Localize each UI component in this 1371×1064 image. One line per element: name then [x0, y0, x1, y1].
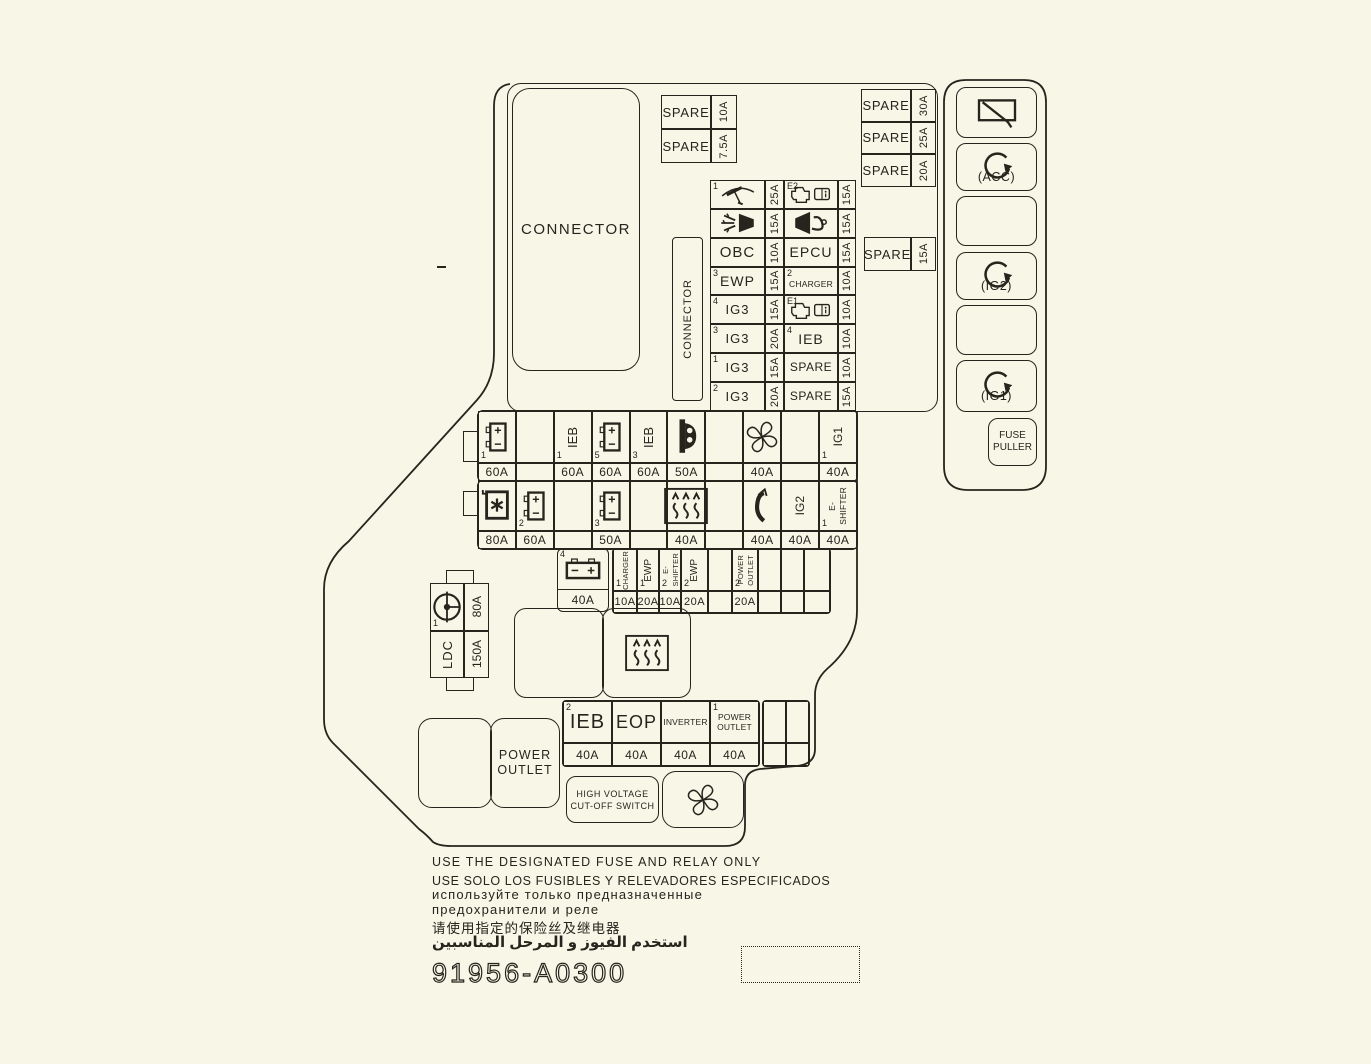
fuse-front-wiper: 1 [710, 180, 765, 209]
fuse-slot-empty [758, 549, 781, 591]
fuse-slot-empty [708, 549, 732, 591]
fuse-amp: 40A [743, 463, 781, 481]
star-box-icon [480, 488, 514, 524]
fuse-amp: 10A [711, 95, 737, 129]
fuse-power-outlet-1: 1POWEROUTLET [710, 701, 759, 743]
fuse-amp: 25A [911, 122, 936, 155]
fuse-slot-empty [705, 481, 743, 531]
fuse-charger: 2CHARGER [784, 267, 838, 296]
fuse-amp: 80A [464, 583, 489, 631]
relay-acc: (ACC) [956, 143, 1037, 191]
warning-line-es: USE SOLO LOS FUSIBLES Y RELEVADORES ESPE… [432, 874, 830, 888]
battery-icon [523, 489, 547, 523]
fuse-amp: 10A [838, 324, 856, 353]
fuse-battery-2: 2 [516, 481, 554, 531]
fuse-spare: SPARE [864, 237, 911, 271]
fuse-amp: 20A [732, 591, 758, 613]
fuse-spare: SPARE [661, 129, 711, 163]
fuse-spare: SPARE [861, 89, 911, 122]
fuse-spare: SPARE [784, 353, 838, 382]
fuse-ig1: 1IG1 [819, 411, 857, 463]
outlet-slot-empty [418, 718, 492, 808]
ldc-block: 1 80A LDC 150A [430, 583, 489, 678]
fuse-amp: 40A [819, 531, 857, 549]
relay-defroster [602, 608, 691, 698]
fuse-amp: 15A [765, 353, 784, 382]
fuse-ig3: 3IG3 [710, 324, 765, 353]
power-outlet-box: POWER OUTLET [490, 718, 560, 808]
fuse-battery-4: 4 40A [557, 548, 609, 612]
fuse-cooling-fan [743, 411, 781, 463]
fuse-row-4: 2IEB EOP INVERTER 1POWEROUTLET 40A 40A 4… [562, 700, 760, 767]
fuse-amp [781, 591, 804, 613]
fuse-blower [478, 481, 516, 531]
fuse-amp: 25A [765, 180, 784, 209]
rear-wiper-icon [971, 95, 1023, 131]
fuse-amp: 80A [478, 531, 516, 549]
connector-vertical-label: CONNECTOR [682, 279, 694, 359]
fuse-slot-empty [516, 411, 554, 463]
fuse-amp: 50A [667, 463, 705, 481]
fuse-headlamp-washer [710, 209, 765, 238]
charge-plug-icon [673, 417, 699, 457]
spare-group-top-right: SPARE 30A SPARE 25A SPARE 20A [861, 89, 936, 187]
fuse-amp: 40A [667, 531, 705, 549]
fuse-amp: 7.5A [711, 129, 737, 163]
fuse-row-3: 1CHARGER 1EWP 2E-SHIFTER 2EWP 2POWEROUTL… [612, 548, 831, 614]
fuse-row-1: 1 1IEB 5 3IEB 1IG1 60A 60A 60A 60A 50A 4… [477, 410, 858, 482]
fuse-amp: 10A [838, 267, 856, 296]
relay-slot-empty [956, 196, 1037, 246]
fuse-amp: 40A [819, 463, 857, 481]
battery-icon [485, 420, 509, 454]
fuse-charger: 1CHARGER [613, 549, 637, 591]
spare-single: SPARE 15A [864, 237, 936, 271]
relay-label: (IG1) [981, 389, 1012, 403]
ldc-tab-top [446, 570, 474, 584]
fuse-amp: 40A [563, 743, 612, 766]
fuse-e-shifter: 1E-SHIFTER [819, 481, 857, 531]
fuse-slot-empty [630, 481, 668, 531]
defrost-icon [624, 634, 670, 672]
main-fuse-grid: 1 25A E2 15A 15A 15A OBC 10A EPCU 15A 3E… [710, 180, 856, 411]
fuse-ig3: 1IG3 [710, 353, 765, 382]
fuse-slot-empty [763, 701, 786, 743]
headlamp-washer-icon [718, 210, 758, 236]
fuse-e-shifter-2: 2E-SHIFTER [659, 549, 681, 591]
fuse-spare: SPARE [784, 382, 838, 411]
fuse-slot-empty [705, 411, 743, 463]
fuse-row-2: 2 3 IG2 1E-SHIFTER 80A 60A 50A 40A 40A 4… [477, 480, 858, 550]
fuse-amp: 60A [592, 463, 630, 481]
fuse-amp: 15A [765, 295, 784, 324]
fuse-eop: EOP [612, 701, 661, 743]
fuse-amp: 50A [592, 531, 630, 549]
fuse-ieb: 4IEB [784, 324, 838, 353]
fuse-amp: 20A [911, 154, 936, 187]
fuse-e2: E2 [784, 180, 838, 209]
relay-label: (ACC) [978, 170, 1015, 184]
fuse-amp: 15A [838, 209, 856, 238]
warning-line-ru-2: предохранители и реле [432, 902, 599, 917]
relay-ig2: (IG2) [956, 252, 1037, 300]
fuse-ieb-1: 1IEB [554, 411, 592, 463]
fuse-amp: 60A [630, 463, 668, 481]
fuse-amp [705, 463, 743, 481]
pump-cell: 1 [430, 583, 464, 631]
fuse-amp: 15A [911, 237, 936, 271]
relay-slot-empty-big [514, 608, 604, 698]
fuse-amp: 15A [765, 209, 784, 238]
tick-mark [437, 266, 446, 268]
fuse-amp [705, 531, 743, 549]
fuse-power-outlet-2: 2POWEROUTLET [732, 549, 758, 591]
fan-icon [741, 416, 783, 458]
connector-label: CONNECTOR [521, 221, 631, 238]
warning-line-ar: استخدم الفيوز و المرحل المناسبين [432, 933, 688, 951]
fuse-puller: FUSE PULLER [988, 418, 1037, 466]
fuse-amp: 20A [765, 382, 784, 411]
hv-cutoff-switch: HIGH VOLTAGE CUT-OFF SWITCH [566, 776, 659, 823]
defrost-icon [663, 487, 709, 525]
fuse-amp: 15A [838, 180, 856, 209]
relay-ig1: (IG1) [956, 360, 1037, 412]
fuse-amp [763, 743, 786, 766]
battery-icon [599, 420, 623, 454]
fuse-amp [708, 591, 732, 613]
fuse-inverter: INVERTER [661, 701, 710, 743]
fuse-amp: 10A [838, 353, 856, 382]
fuse-battery-3: 3 [592, 481, 630, 531]
fuse-slot-empty [554, 481, 592, 531]
fuse-amp: 40A [743, 531, 781, 549]
relay-rear-wiper [956, 87, 1037, 138]
fuse-amp [804, 591, 830, 613]
connector-vertical: CONNECTOR [672, 237, 703, 401]
fuse-slot-empty [781, 549, 804, 591]
fuse-ieb-3: 3IEB [630, 411, 668, 463]
fuse-spare: SPARE [861, 154, 911, 187]
spare-group-top-left: SPARE 10A SPARE 7.5A [661, 95, 737, 163]
fuse-battery-5: 5 [592, 411, 630, 463]
horn-icon [791, 210, 831, 236]
fan-icon [682, 779, 724, 821]
fan-relay-box [662, 771, 744, 828]
fuse-ig2: IG2 [781, 481, 819, 531]
fuse-amp: 10A [838, 295, 856, 324]
ldc-label-cell: LDC [430, 631, 464, 679]
fuse-ewp-2: 2EWP [681, 549, 708, 591]
flap-icon [750, 486, 774, 526]
fuse-amp: 40A [710, 743, 759, 766]
fuse-ewp-1: 1EWP [637, 549, 659, 591]
fuse-amp: 20A [765, 324, 784, 353]
fuse-ieb-2: 2IEB [563, 701, 612, 743]
wiper-icon [719, 180, 757, 208]
fuse-amp: 40A [781, 531, 819, 549]
fuse-amp [554, 531, 592, 549]
fuse-amp: 15A [765, 267, 784, 296]
label-placeholder-box [741, 946, 860, 983]
fuse-ig3: 4IG3 [710, 295, 765, 324]
fuse-amp [630, 531, 668, 549]
fuse-defroster [667, 481, 705, 531]
fuse-charge-port [667, 411, 705, 463]
fuse-slot-empty [804, 549, 830, 591]
fuse-slot-empty [786, 701, 809, 743]
fuse-spare: SPARE [661, 95, 711, 129]
fuse-amp [786, 743, 809, 766]
fuse-amp: 60A [554, 463, 592, 481]
fuse-battery-1: 1 [478, 411, 516, 463]
fuse-amp: 30A [911, 89, 936, 122]
fuse-box-diagram: CONNECTOR SPARE 10A SPARE 7.5A SPARE 30A… [0, 0, 1371, 1064]
warning-line-en: USE THE DESIGNATED FUSE AND RELAY ONLY [432, 855, 761, 869]
warning-line-ru-1: используйте только предназначенные [432, 887, 703, 902]
fuse-amp: 15A [838, 238, 856, 267]
fuse-amp: 150A [464, 631, 489, 679]
fuse-epcu: EPCU [784, 238, 838, 267]
fuse-obc: OBC [710, 238, 765, 267]
fuse-amp: 60A [478, 463, 516, 481]
fuse-amp: 15A [838, 382, 856, 411]
battery-horizontal-icon [564, 558, 602, 581]
fuse-ig3: 2IG3 [710, 382, 765, 411]
fuse-flap [743, 481, 781, 531]
part-number: 91956-A0300 [432, 958, 627, 989]
relay-slot-empty [956, 305, 1037, 355]
ldc-tab-bottom [446, 677, 474, 691]
fuse-e1: E1 [784, 295, 838, 324]
fuse-amp [758, 591, 781, 613]
fuse-slot-empty [781, 411, 819, 463]
connector-block: CONNECTOR [512, 88, 640, 371]
fuse-ewp: 3EWP [710, 267, 765, 296]
fuse-amp [516, 463, 554, 481]
battery-icon [599, 489, 623, 523]
fuse-amp [781, 463, 819, 481]
fuse-row-4-spare-slots [762, 700, 810, 767]
relay-label: (IG2) [981, 279, 1012, 293]
fuse-amp: 40A [612, 743, 661, 766]
fuse-spare: SPARE [861, 122, 911, 155]
fuse-amp: 40A [661, 743, 710, 766]
fuse-amp: 60A [516, 531, 554, 549]
fuse-horn [784, 209, 838, 238]
fuse-amp: 10A [765, 238, 784, 267]
